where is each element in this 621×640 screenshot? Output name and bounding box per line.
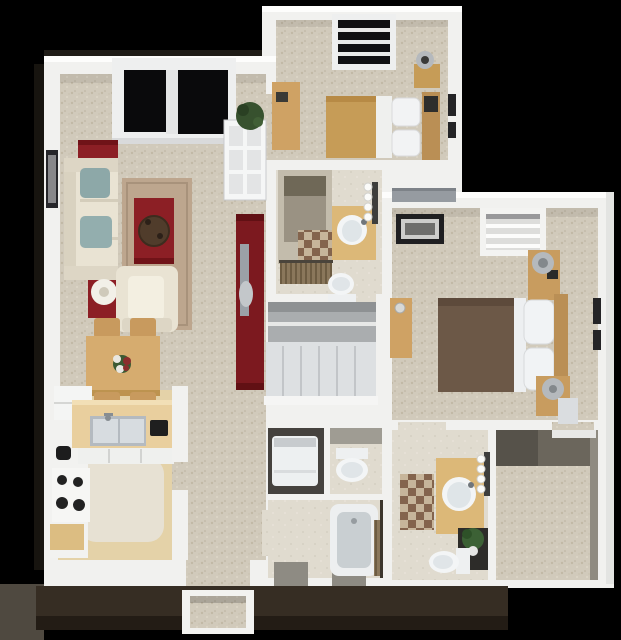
m-frame-photo (405, 223, 435, 235)
peninsula-counter-edge (72, 400, 174, 405)
door-panel-4 (247, 150, 261, 170)
m-lamp-south-top (549, 385, 557, 393)
tv-stand-end-north (236, 214, 264, 221)
bath1-vanity-light-2 (364, 193, 372, 201)
end-table-north-edge (78, 140, 118, 145)
lower-cabinet (50, 524, 84, 550)
closet-interior-shadow (268, 302, 376, 312)
mbath-light-2 (477, 465, 485, 473)
shower-curtain (280, 262, 332, 284)
b1-bed-blanket (326, 96, 376, 158)
houseplant-leaf-2 (253, 117, 263, 127)
bathtub-drain (351, 518, 357, 524)
closet-door-groove-4 (336, 346, 338, 396)
b1-blind-slat-1 (338, 28, 390, 32)
stove (52, 468, 90, 522)
bath1-mirror (372, 182, 378, 224)
sofa-back (64, 158, 76, 280)
mbath-light-1 (477, 455, 485, 463)
layer-hall-closet (264, 302, 378, 405)
centerpiece-flower-1 (113, 355, 121, 363)
dining-chair-n1 (94, 318, 120, 338)
mbath-light-3 (477, 475, 485, 483)
burner-2 (73, 477, 83, 487)
m-window-shadow (486, 214, 540, 219)
burner-4 (73, 499, 85, 511)
tv-stand-end-south (236, 383, 264, 390)
left-wall-outer-edge (34, 64, 44, 570)
m-wall-frame-2 (593, 330, 601, 350)
mbath-faucet (468, 482, 474, 488)
wall-art-inner (48, 155, 56, 203)
table-lamp-top (99, 287, 109, 297)
closet-sill (264, 396, 378, 405)
wc-back-shadow (330, 428, 382, 444)
m-bed-comforter (438, 298, 516, 392)
burner-3 (56, 497, 68, 509)
mbath-door-opening (398, 422, 446, 432)
b1-pillow-2 (392, 130, 420, 156)
tray-decor-2 (157, 233, 163, 239)
b1-wall-frame-2 (448, 122, 456, 138)
sink-faucet-bar (104, 413, 113, 416)
sink-basin-left (93, 419, 118, 443)
wc-toilet-tank (336, 448, 368, 459)
m-desk-item (395, 303, 405, 313)
door-panel-1 (229, 126, 243, 146)
fascia-dark (36, 616, 508, 630)
coffee-table-edge (134, 258, 174, 264)
window-glass-left (124, 70, 166, 132)
bath1-toilet-seat (332, 277, 350, 291)
layer-laundry-closet (272, 436, 318, 486)
tray-decor-1 (145, 219, 151, 225)
washer-seam (274, 470, 316, 473)
dining-chair-n2 (130, 318, 156, 338)
m-lamp-north-top (538, 258, 548, 268)
throw-pillow-1 (80, 168, 110, 198)
floorplan-render (0, 0, 621, 640)
m-leaning-mirror (558, 398, 578, 424)
bath1-vanity-light-4 (364, 213, 372, 221)
bath1-vanity-light-1 (364, 183, 372, 191)
mbath-checkered-rug (400, 474, 434, 530)
kitchen-wall-south (172, 490, 188, 560)
m-blind-slat-3 (486, 244, 540, 248)
tub-room-opening (262, 510, 270, 556)
throw-pillow-2 (80, 216, 112, 248)
floorplan-svg (0, 0, 621, 640)
burner-1 (57, 475, 67, 485)
centerpiece-flower-4 (123, 365, 129, 371)
shower-curtain-rod (279, 260, 333, 263)
entry-opening (186, 560, 250, 588)
tv-base (239, 281, 253, 307)
b1-pillow-1 (392, 98, 420, 126)
houseplant-leaf-1 (237, 104, 249, 116)
kitchen-wall-north (172, 386, 188, 462)
shower-shadow (284, 176, 326, 196)
tub-curtain-rod (380, 500, 383, 578)
mbath-light-4 (477, 485, 485, 493)
wic-right-shadow (590, 430, 598, 580)
closet-shelf-line (268, 322, 376, 326)
wc-toilet-seat (341, 462, 363, 478)
window-glass-right (178, 70, 228, 134)
cabinet-front-line-2 (140, 449, 142, 463)
sofa-arm-south (64, 266, 118, 280)
wic-entry-sill (552, 430, 596, 438)
wic-dark-corner (496, 430, 538, 466)
mbath-toilet-seat (433, 555, 453, 569)
b1-blind-slat-3 (338, 52, 390, 56)
centerpiece-flower-3 (116, 365, 124, 373)
bath1-vanity-light-3 (364, 203, 372, 211)
b1-desk-item (276, 92, 288, 102)
m-blind-slat-1 (486, 224, 540, 228)
kettle (56, 446, 71, 460)
master-door-edge (392, 188, 456, 191)
centerpiece-flower-2 (123, 357, 131, 365)
bottom-wall-sliver-1 (274, 562, 308, 586)
b1-headboard-items (424, 96, 438, 112)
mbath-sink-bowl (447, 482, 471, 508)
entry-door-shadow (190, 596, 246, 603)
b1-lamp-top (421, 56, 429, 64)
sofa-cushion-line-1 (80, 199, 118, 202)
kitchen-floor-inset (80, 458, 164, 542)
door-panel-3 (229, 150, 243, 170)
closet-door-groove-3 (318, 346, 320, 396)
m-wall-frame-1 (593, 298, 601, 324)
closet-door-groove-5 (354, 346, 356, 396)
layer-entry (36, 586, 508, 634)
wall-top-highlight-bedroom1 (262, 6, 462, 12)
m-comforter-edge (438, 298, 516, 306)
sink-basin-right (120, 419, 144, 443)
closet-door-groove-2 (300, 346, 302, 396)
bath1-sink-bowl (342, 220, 362, 242)
m-pillow-1 (524, 300, 554, 344)
mbath-plant-leaf (462, 529, 472, 539)
door-panel-5 (229, 174, 243, 194)
door-panel-6 (247, 174, 261, 194)
cabinet-front-line-1 (108, 449, 110, 463)
closet-door-groove-1 (282, 346, 284, 396)
m-blind-slat-2 (486, 234, 540, 238)
b1-wall-frame-1 (448, 94, 456, 116)
window-mullion (166, 70, 178, 134)
cabinet-front (78, 448, 174, 464)
roofline-shadow (44, 50, 282, 57)
b1-bed-sheet (376, 96, 392, 158)
washer-gap (274, 438, 316, 447)
b1-blind-slat-2 (338, 40, 390, 44)
b1-bed-blanket-edge (326, 96, 376, 102)
layer-tub-room (330, 500, 383, 578)
coffee-maker (150, 420, 168, 436)
armchair-seat (128, 276, 164, 320)
master-east-face (606, 192, 614, 584)
window-sill (112, 138, 236, 144)
